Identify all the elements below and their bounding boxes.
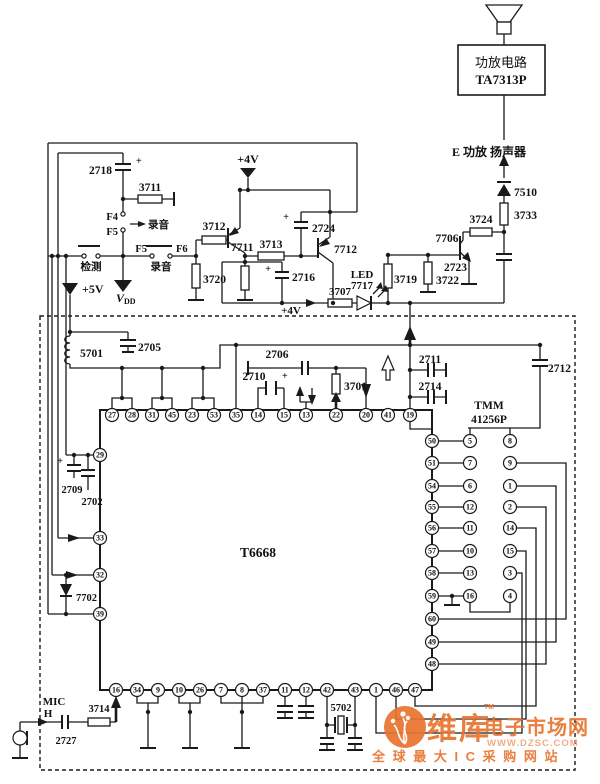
pin-number: 10 <box>466 547 474 556</box>
c2727-label: 2727 <box>56 736 77 747</box>
junction-dot <box>408 395 412 399</box>
pin-number: 1 <box>508 482 512 491</box>
pin-number: 39 <box>96 610 104 619</box>
junction-dot <box>328 210 332 214</box>
led-7717-icon <box>357 296 371 310</box>
junction-dot <box>50 254 54 258</box>
schematic-page: 2728314523533514151322204119293332395051… <box>0 0 600 784</box>
arrow-pin33 <box>68 534 80 542</box>
c2706-label: 2706 <box>266 349 289 361</box>
speaker-base <box>497 22 511 34</box>
resistor-3713 <box>258 252 284 260</box>
c2710-label: 2710 <box>243 371 266 383</box>
junction-dot <box>121 254 125 258</box>
junction-dot <box>238 188 242 192</box>
watermark-url: WWW.DZSC.COM <box>487 738 579 749</box>
junction-dot <box>334 366 338 370</box>
junction-dot <box>64 573 68 577</box>
r3722-label: 3722 <box>436 275 459 287</box>
junction-dot <box>331 301 335 305</box>
pin-number: 12 <box>302 686 310 695</box>
junction-dot <box>246 188 250 192</box>
eline-label: E 功放 扬声器 <box>452 144 527 159</box>
pin-number: 16 <box>112 686 120 695</box>
component-bodies <box>13 5 545 745</box>
pin-number: 10 <box>175 686 183 695</box>
x5702-label: 5702 <box>331 703 352 714</box>
pin-number: 9 <box>156 686 160 695</box>
junction-dot <box>240 710 244 714</box>
watermark: 维库 电子市场网 TM WWW.DZSC.COM 全 球 最 大 I C 采 购… <box>371 704 589 764</box>
pin-number: 48 <box>428 660 436 669</box>
r3701-label: 3701 <box>344 381 367 393</box>
pin-number: 59 <box>428 592 436 601</box>
c2705-label: 2705 <box>138 342 161 354</box>
pin-number: 41 <box>384 411 392 420</box>
c2718-label: 2718 <box>89 165 112 177</box>
arrow-vdd-line-up <box>404 326 416 340</box>
pl2718-label: + <box>136 156 142 167</box>
pin-number: 57 <box>428 547 436 556</box>
diode-7702-icon <box>60 584 72 596</box>
pin-number: 7 <box>468 459 472 468</box>
f6-label: F6 <box>176 244 188 255</box>
pin-number: 51 <box>428 459 436 468</box>
pin-number: 28 <box>128 411 136 420</box>
pin-number: 58 <box>428 569 436 578</box>
power-amp-part: TA7313P <box>475 72 526 87</box>
watermark-logo-dot <box>406 716 410 720</box>
pin-number: 2 <box>508 503 512 512</box>
pin-number: 60 <box>428 615 436 624</box>
c2723-label: 2723 <box>444 262 467 274</box>
pin-number: 34 <box>133 686 141 695</box>
resistor-3722 <box>424 262 432 284</box>
junction-dot <box>408 343 412 347</box>
pin-number: 26 <box>196 686 204 695</box>
watermark-logo-dot <box>400 711 405 716</box>
jc-label: 检测 <box>81 260 102 273</box>
hollow-up-arrow-pin41 <box>382 356 394 380</box>
pin-number: 8 <box>508 437 512 446</box>
resistor-3733 <box>500 203 508 225</box>
r3733-label: 3733 <box>514 210 537 222</box>
arrow-on-4v-wire <box>306 299 316 307</box>
junction-dot <box>64 254 68 258</box>
contact-jiance-r <box>96 254 100 258</box>
ly1-label: 录音 <box>148 218 169 231</box>
junction-dot <box>386 301 390 305</box>
pin-number: 23 <box>188 411 196 420</box>
d7702-label: 7702 <box>76 593 97 604</box>
pin-number: 14 <box>254 411 262 420</box>
junction-dot <box>299 254 303 258</box>
microphone-icon <box>13 731 27 745</box>
arrow-7711-emitter <box>229 227 239 236</box>
watermark-slogan: 全 球 最 大 I C 采 购 网 站 <box>371 749 560 764</box>
q7711-label: 7711 <box>231 242 254 254</box>
c2702-label: 2702 <box>82 497 103 508</box>
pin-number: 8 <box>240 686 244 695</box>
junction-dot <box>201 366 205 370</box>
contact-f5 <box>150 254 154 258</box>
pin-number: 15 <box>280 411 288 420</box>
c2711-label: 2711 <box>419 354 442 366</box>
c2724-label: 2724 <box>312 223 335 235</box>
r3711-label: 3711 <box>139 182 162 194</box>
pin-number: 27 <box>108 411 116 420</box>
pin-number: 11 <box>281 686 289 695</box>
pin-number: 12 <box>466 503 474 512</box>
junction-dot <box>386 253 390 257</box>
speaker-icon <box>486 5 522 22</box>
resistor-3724 <box>470 228 492 236</box>
junction-dot <box>120 396 124 400</box>
pin-number: 47 <box>411 686 419 695</box>
junction-dot <box>56 254 60 258</box>
power-amp-box <box>458 45 545 95</box>
d7510-label: 7510 <box>514 187 537 199</box>
junction-dot <box>68 330 72 334</box>
pin-number: 5 <box>468 437 472 446</box>
dashed-module-border <box>40 316 575 770</box>
pin-number: 49 <box>428 638 436 647</box>
mic2-label: H <box>44 708 53 720</box>
p5v-label: +5V <box>82 282 104 296</box>
f5b-label: F5 <box>135 244 147 255</box>
pin-number: 4 <box>508 592 512 601</box>
pin-number: 13 <box>302 411 310 420</box>
watermark-tm: TM <box>484 704 494 711</box>
p4vt-label: +4V <box>237 152 259 166</box>
wire-net <box>20 34 566 758</box>
resistor-3714 <box>88 718 110 726</box>
junction-dot <box>450 594 454 598</box>
arrow-pin13-down <box>308 395 316 405</box>
pin-number: 14 <box>506 524 514 533</box>
junction-dot <box>408 301 412 305</box>
pin-number: 45 <box>168 411 176 420</box>
pin-number: 1 <box>374 686 378 695</box>
junction-dot <box>243 254 247 258</box>
pin-number: 3 <box>508 569 512 578</box>
junction-dot <box>502 230 506 234</box>
junction-dot <box>160 366 164 370</box>
watermark-brand2: 电子市场网 <box>484 715 589 739</box>
pin-number: 32 <box>96 571 104 580</box>
pin-number: 19 <box>406 411 414 420</box>
resistor-3712 <box>202 236 226 244</box>
r3720-label: 3720 <box>203 274 226 286</box>
vdd-label: VDD <box>116 291 136 306</box>
junction-dot <box>146 710 150 714</box>
pin-number: 31 <box>148 411 156 420</box>
supply-5v-triangle <box>62 283 78 295</box>
pin-number: 9 <box>508 459 512 468</box>
supply-4v-triangle <box>240 168 256 178</box>
junction-dot <box>353 723 357 727</box>
junction-dot <box>64 612 68 616</box>
junction-dot <box>243 260 247 264</box>
pin-number: 50 <box>428 437 436 446</box>
pin-number: 43 <box>351 686 359 695</box>
pl2716-label: + <box>265 264 271 275</box>
power-amp-title: 功放电路 <box>475 55 527 70</box>
diode-7510-icon <box>497 184 511 196</box>
pin-number: 55 <box>428 503 436 512</box>
contact-f6 <box>168 254 172 258</box>
pl2724-label: + <box>283 212 289 223</box>
c2712-label: 2712 <box>548 363 571 375</box>
watermark-brand1: 维库 <box>427 713 491 746</box>
wiring <box>12 34 566 758</box>
contact-jiance-l <box>82 254 86 258</box>
junction-dot <box>121 197 125 201</box>
f4-label: F4 <box>106 212 118 223</box>
pin-number: 35 <box>232 411 240 420</box>
f5a-label: F5 <box>106 227 118 238</box>
ic-pins: 2728314523533514151322204119293332395051… <box>94 409 517 697</box>
r3713-label: 3713 <box>260 239 283 251</box>
watermark-logo-dot <box>391 719 395 723</box>
r3712-label: 3712 <box>203 221 226 233</box>
l5701-label: 5701 <box>80 348 103 360</box>
pin-number: 33 <box>96 534 104 543</box>
arrow-pin13-up <box>296 386 304 396</box>
junction-dot <box>201 396 205 400</box>
pin-number: 56 <box>428 524 436 533</box>
r3724-label: 3724 <box>470 214 493 226</box>
c2714-label: 2714 <box>419 381 442 393</box>
pin-number: 37 <box>259 686 267 695</box>
pin-number: 42 <box>323 686 331 695</box>
contact-f5-vert <box>121 228 125 232</box>
contact-f4 <box>121 212 125 216</box>
pin-number: 6 <box>468 482 472 491</box>
pin-number: 13 <box>466 569 474 578</box>
r3707-label: 3707 <box>329 286 352 298</box>
junction-dot <box>72 453 76 457</box>
led2-label: 7717 <box>351 280 374 292</box>
r3714-label: 3714 <box>89 704 111 715</box>
pin-number: 22 <box>332 411 340 420</box>
junction-dot <box>188 710 192 714</box>
pl2709-label: + <box>57 456 63 467</box>
resistor-emitter-7711 <box>241 266 249 290</box>
t6668-label: T6668 <box>240 545 276 560</box>
pin-number: 29 <box>96 451 104 460</box>
resistor-3701 <box>332 374 340 394</box>
p4vw-label: +4V <box>281 305 301 317</box>
junction-dot <box>408 368 412 372</box>
c2709-label: 2709 <box>62 485 83 496</box>
ly2-label: 录音 <box>151 260 172 273</box>
pl2710-label: + <box>282 371 288 382</box>
circuit-schematic-svg: 2728314523533514151322204119293332395051… <box>0 0 600 784</box>
junction-dot <box>325 723 329 727</box>
tmm2-label: 41256P <box>471 414 507 426</box>
crystal-5702-body <box>338 716 344 734</box>
pin-number: 54 <box>428 482 436 491</box>
junction-dot <box>234 343 238 347</box>
c2716-label: 2716 <box>292 272 315 284</box>
resistor-3720 <box>192 264 200 288</box>
pin-number: 53 <box>210 411 218 420</box>
pin-number: 16 <box>466 592 474 601</box>
q7706-label: 7706 <box>436 233 459 245</box>
junction-dot <box>538 343 542 347</box>
junction-dot <box>194 254 198 258</box>
arrow-pin16-up <box>111 696 121 708</box>
r3719-label: 3719 <box>394 274 417 286</box>
pin-number: 11 <box>466 524 474 533</box>
led-ray-1 <box>376 282 383 289</box>
junction-dot <box>86 453 90 457</box>
switch-contacts <box>82 212 172 258</box>
junction-dot <box>426 253 430 257</box>
mic1-label: MIC <box>43 696 66 708</box>
resistor-3719 <box>384 264 392 288</box>
arrow-luyin <box>138 221 146 227</box>
pin-number: 7 <box>219 686 223 695</box>
junction-dot <box>160 396 164 400</box>
pin-number: 15 <box>506 547 514 556</box>
pin-number: 46 <box>392 686 400 695</box>
resistor-3711 <box>138 195 162 203</box>
tmm1-label: TMM <box>474 400 504 412</box>
junction-dot <box>120 366 124 370</box>
q7712-label: 7712 <box>334 244 357 256</box>
pin-number: 20 <box>362 411 370 420</box>
arrow-7706-emitter <box>462 252 471 262</box>
